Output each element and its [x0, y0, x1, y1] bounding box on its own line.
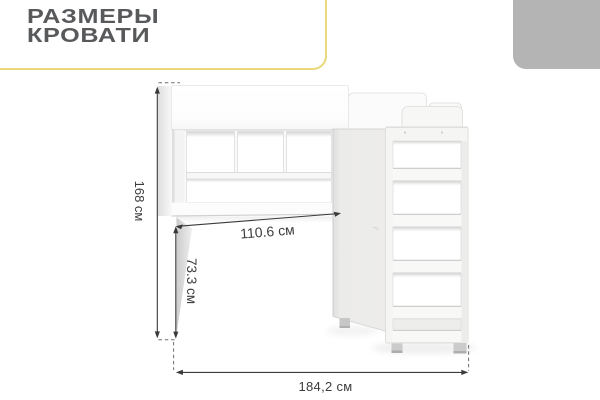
svg-text:184,2 см: 184,2 см	[299, 379, 353, 394]
svg-text:110.6 см: 110.6 см	[240, 221, 296, 241]
svg-text:73.3 см: 73.3 см	[184, 258, 199, 304]
svg-text:168 см: 168 см	[132, 181, 147, 222]
